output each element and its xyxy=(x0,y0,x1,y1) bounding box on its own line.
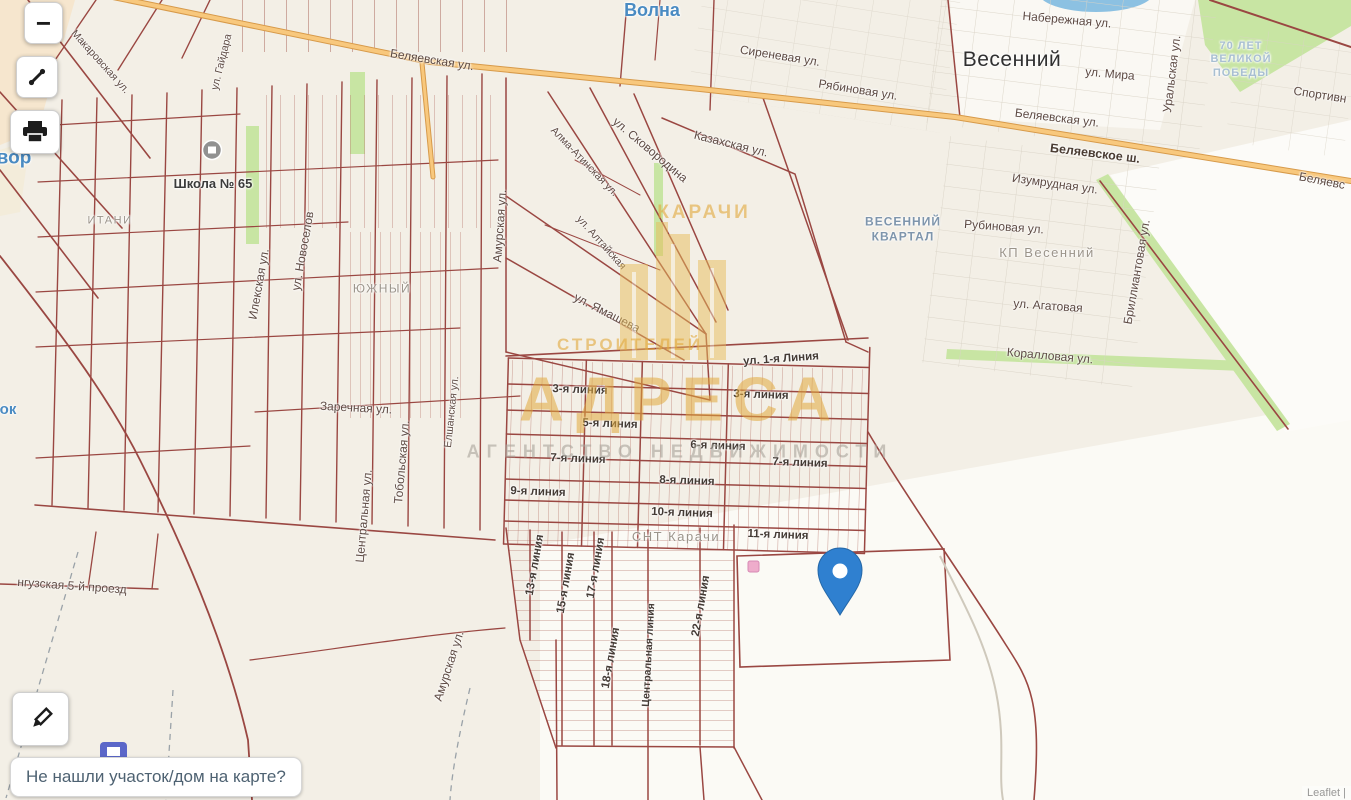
draw-parcel-button[interactable] xyxy=(12,692,69,746)
expand-diagonal-icon xyxy=(26,66,48,88)
map-base-layer xyxy=(0,0,1351,800)
not-found-prompt-text: Не нашли участок/дом на карте? xyxy=(26,767,286,787)
fullscreen-button[interactable] xyxy=(16,56,58,98)
not-found-prompt[interactable]: Не нашли участок/дом на карте? xyxy=(10,757,302,797)
pencil-icon xyxy=(28,706,54,732)
minus-icon: − xyxy=(36,8,51,39)
print-button[interactable] xyxy=(10,110,60,154)
school-icon xyxy=(203,141,222,160)
zoom-out-button[interactable]: − xyxy=(24,2,63,44)
leaflet-attribution: Leaflet | xyxy=(1302,786,1351,800)
poi-marker-pink xyxy=(748,561,759,572)
map-canvas[interactable]: ВолнаворокВесеннийВЕСЕННИЙ КВАРТАЛ70 ЛЕТ… xyxy=(0,0,1351,800)
printer-icon xyxy=(22,121,48,143)
